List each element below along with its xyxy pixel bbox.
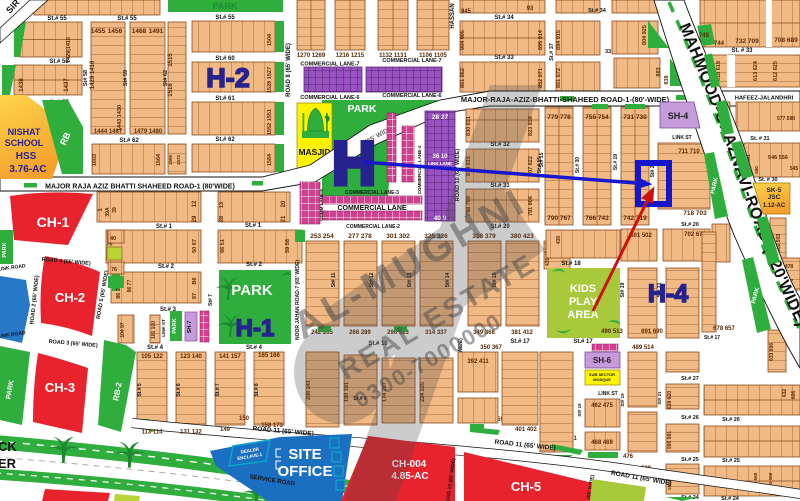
svg-text:33: 33 [605,49,611,55]
svg-text:462 475: 462 475 [591,403,613,409]
svg-text:1491: 1491 [149,28,164,35]
svg-text:COMMERCIAL LANE: COMMERCIAL LANE [337,205,406,212]
svg-text:St.# 7: St.# 7 [215,383,221,397]
svg-text:619 620: 619 620 [667,391,673,409]
svg-text:1456: 1456 [108,28,123,35]
svg-text:MOSQUE: MOSQUE [593,377,611,382]
svg-text:KIDS: KIDS [570,283,596,295]
svg-text:CK: CK [0,439,17,454]
svg-text:COMMERCIAL LANE-3: COMMERCIAL LANE-3 [345,190,399,196]
svg-text:St.# 34: St.# 34 [588,8,607,14]
svg-text:HAFEEZ-JALANDHRI: HAFEEZ-JALANDHRI [735,96,794,102]
svg-text:96 77: 96 77 [127,280,133,293]
svg-text:1479 1480: 1479 1480 [134,129,163,135]
svg-text:632: 632 [782,389,788,398]
svg-text:St.# 25: St.# 25 [681,457,699,463]
svg-text:839: 839 [664,75,670,84]
svg-text:St.# 62: St.# 62 [119,138,139,144]
svg-text:489 514: 489 514 [632,345,654,351]
svg-text:1437: 1437 [64,78,70,92]
svg-text:28: 28 [219,216,225,222]
svg-text:1595: 1595 [168,154,173,165]
svg-text:St# 21: St# 21 [657,391,662,405]
svg-text:861 872: 861 872 [556,68,562,88]
svg-text:28 27: 28 27 [432,114,449,121]
svg-text:St# 7: St# 7 [208,294,214,306]
svg-text:678 657: 678 657 [713,326,735,332]
svg-text:HSS: HSS [16,151,37,162]
svg-text:590 591: 590 591 [667,431,673,449]
svg-text:883: 883 [656,67,662,76]
svg-text:613 624: 613 624 [753,60,759,81]
svg-text:718 703: 718 703 [683,210,707,217]
svg-text:123 140: 123 140 [180,354,202,360]
svg-text:CH-3: CH-3 [45,380,75,395]
svg-text:St# 58: St# 58 [83,70,89,86]
svg-text:H-1: H-1 [236,315,275,342]
svg-text:113 114: 113 114 [141,430,163,436]
svg-text:CH-1: CH-1 [37,214,70,230]
svg-text:PARK: PARK [213,1,238,11]
svg-text:550: 550 [754,166,759,174]
svg-text:1270 1269: 1270 1269 [297,53,326,59]
svg-text:St.# 2: St.# 2 [158,264,175,270]
svg-text:SH-4: SH-4 [668,111,689,121]
svg-text:606: 606 [791,391,797,400]
svg-text:708 689: 708 689 [774,37,798,44]
svg-text:1443 1430: 1443 1430 [117,105,123,131]
svg-text:COMMERCIAL LANE-4: COMMERCIAL LANE-4 [417,145,422,194]
svg-text:St.# 34: St.# 34 [494,15,514,21]
svg-text:St.# 61: St.# 61 [215,96,235,102]
svg-text:St.# 30: St.# 30 [575,157,581,173]
svg-text:253 254: 253 254 [310,233,334,240]
svg-text:21: 21 [281,215,287,222]
svg-text:St.# 56: St.# 56 [49,59,69,65]
svg-text:St.# 19: St.# 19 [613,154,619,170]
svg-text:St.# 17: St.# 17 [510,339,530,345]
svg-text:545: 545 [790,166,799,172]
svg-text:830 831: 830 831 [466,116,472,136]
svg-text:St.# 55: St.# 55 [215,15,235,21]
svg-text:20: 20 [281,200,287,207]
svg-text:392 411: 392 411 [467,359,489,365]
svg-text:SCHOOL: SCHOOL [5,138,44,148]
svg-text:76: 76 [111,267,117,273]
svg-text:1468: 1468 [132,28,147,35]
svg-text:St.# 6: St.# 6 [176,383,182,397]
svg-text:St. # 31: St. # 31 [750,136,769,142]
svg-text:COMMERCIAL LANE-7: COMMERCIAL LANE-7 [382,58,441,64]
svg-text:381 412: 381 412 [511,330,533,336]
svg-text:742 719: 742 719 [623,215,647,222]
svg-text:165 166: 165 166 [258,353,280,359]
svg-text:476: 476 [623,454,634,460]
svg-text:13: 13 [219,202,225,208]
svg-text:St.# 15: St.# 15 [537,157,543,173]
svg-text:St.# 17: St.# 17 [573,339,593,345]
svg-text:66 51: 66 51 [220,239,226,253]
svg-text:105 122: 105 122 [141,354,163,360]
svg-text:1584: 1584 [267,153,273,166]
svg-text:St.# 4: St.# 4 [246,345,263,351]
svg-text:St.# 55: St.# 55 [117,16,137,22]
svg-text:3.76-AC: 3.76-AC [9,164,46,175]
svg-text:12: 12 [192,200,198,207]
svg-text:468 469: 468 469 [591,440,613,446]
svg-text:ER: ER [0,456,17,471]
svg-text:1438: 1438 [19,78,25,92]
svg-text:PARK: PARK [2,242,8,257]
svg-text:St.# 2: St.# 2 [246,262,263,268]
svg-text:546 556: 546 556 [768,155,788,161]
svg-text:59 58: 59 58 [285,239,291,253]
svg-text:HASSAN: HASSAN [450,3,456,28]
svg-text:1504: 1504 [267,33,273,46]
svg-text:St# 59: St# 59 [123,70,129,86]
svg-text:St.# 55: St.# 55 [47,16,67,22]
svg-text:St.# 17: St.# 17 [704,335,720,341]
svg-text:St# 62: St# 62 [163,70,169,86]
svg-text:501 502: 501 502 [630,233,652,239]
svg-text:1528 1527: 1528 1527 [267,67,273,93]
svg-text:691 690: 691 690 [641,329,663,335]
svg-text:1515: 1515 [168,53,174,67]
svg-text:LINK ST: LINK ST [161,319,166,337]
svg-text:COMM LANE-5: COMM LANE-5 [319,189,324,221]
svg-text:JSC: JSC [768,194,781,201]
svg-text:633 656: 633 656 [769,343,775,361]
svg-text:ROAD 8 (65' WIDE): ROAD 8 (65' WIDE) [286,43,292,97]
svg-text:B6: B6 [192,277,198,284]
svg-text:SH-6: SH-6 [593,356,612,365]
svg-text:612 625: 612 625 [773,61,779,81]
svg-text:852 871: 852 871 [538,68,544,88]
svg-text:St.# 24: St.# 24 [721,496,740,501]
svg-text:St.# 1: St.# 1 [245,223,262,229]
svg-text:158 173: 158 173 [261,423,283,429]
svg-text:PARK: PARK [231,282,273,299]
svg-text:OFFICE: OFFICE [278,463,333,480]
svg-text:39A: 39A [105,207,111,217]
svg-text:St.# 18: St.# 18 [561,261,581,267]
svg-text:SH-7: SH-7 [187,321,193,334]
svg-text:755 754: 755 754 [585,114,609,121]
svg-text:401 402: 401 402 [515,427,537,433]
svg-text:St.# 60: St.# 60 [215,56,235,62]
svg-text:577 590: 577 590 [777,116,795,122]
svg-text:895 914: 895 914 [538,29,544,50]
svg-text:40: 40 [110,236,116,242]
svg-text:1564: 1564 [156,153,162,166]
svg-text:PARK: PARK [172,318,178,333]
svg-text:MAJOR RAJA AZIZ BHATTI SHAHEED: MAJOR RAJA AZIZ BHATTI SHAHEED ROAD-1 (8… [45,184,235,191]
svg-text:CH-5: CH-5 [511,479,541,494]
svg-text:LINK ST: LINK ST [598,391,617,397]
svg-text:150: 150 [239,416,250,422]
svg-text:904 905: 904 905 [460,30,466,50]
svg-text:LINK ST: LINK ST [672,135,691,141]
svg-text:St.# 33: St.# 33 [494,55,514,61]
svg-text:1216 1215: 1216 1215 [336,53,365,59]
svg-text:745: 745 [699,33,710,39]
svg-text:1.12-AC: 1.12-AC [763,203,786,209]
svg-text:LINK LANE: LINK LANE [428,161,452,166]
svg-text:St.# 20: St.# 20 [681,222,699,228]
svg-text:St.# 27: St.# 27 [681,376,699,382]
svg-text:104 97: 104 97 [120,322,126,338]
svg-text:101 100: 101 100 [151,321,157,339]
svg-text:744: 744 [714,41,725,47]
svg-text:St.# 26: St.# 26 [681,415,699,421]
svg-text:St. # 33: St. # 33 [731,48,753,54]
svg-text:141 157: 141 157 [219,354,241,360]
svg-text:732 709: 732 709 [735,38,759,45]
svg-text:1429 1416: 1429 1416 [90,60,96,89]
svg-text:277 278: 277 278 [348,233,372,240]
svg-text:PARK: PARK [348,103,377,115]
svg-text:St.# 8: St.# 8 [254,383,260,397]
svg-text:1444 1467: 1444 1467 [94,129,123,135]
svg-text:1603: 1603 [92,154,98,166]
svg-text:PLAY: PLAY [569,296,598,308]
svg-text:87: 87 [192,293,198,299]
svg-text:29: 29 [192,215,198,222]
svg-text:St# 19: St# 19 [620,393,625,407]
svg-text:St.# 26: St.# 26 [722,417,740,423]
svg-text:H-2: H-2 [206,63,250,93]
svg-text:St# 16: St# 16 [577,403,582,417]
svg-text:149: 149 [220,427,231,433]
svg-text:131 132: 131 132 [180,430,202,436]
svg-text:731 730: 731 730 [623,114,647,121]
svg-text:39: 39 [112,207,118,213]
svg-text:St.# 37: St.# 37 [549,43,555,61]
svg-text:COMMERCIAL LANE-6: COMMERCIAL LANE-6 [382,93,441,99]
svg-text:SK-5: SK-5 [767,187,782,194]
svg-text:894 915: 894 915 [556,30,562,50]
svg-text:766 743: 766 743 [585,215,609,222]
svg-text:804 925: 804 925 [642,25,648,45]
svg-text:COMMERCIAL LANE-7: COMMERCIAL LANE-7 [300,62,359,68]
svg-text:St# 19: St# 19 [620,282,626,297]
svg-text:490 513: 490 513 [601,329,623,335]
svg-text:1552 1551: 1552 1551 [267,109,273,135]
svg-text:St.# 4: St.# 4 [147,345,164,351]
svg-text:93: 93 [527,6,534,12]
svg-text:779 778: 779 778 [547,114,571,121]
svg-text:301 302: 301 302 [386,233,410,240]
svg-text:St.# 5: St.# 5 [137,383,143,397]
svg-text:711 710: 711 710 [678,149,700,155]
svg-text:CH-2: CH-2 [55,290,85,305]
svg-text:1455: 1455 [91,28,106,35]
svg-text:1572: 1572 [176,154,181,165]
svg-text:St.# 25: St.# 25 [722,458,740,464]
svg-text:COMMERCIAL LANE-2: COMMERCIAL LANE-2 [346,224,400,230]
svg-text:945: 945 [461,9,472,15]
svg-text:807 822: 807 822 [528,156,534,176]
svg-text:861 862: 861 862 [460,68,466,88]
svg-text:430: 430 [556,236,562,245]
svg-text:St.# 62: St.# 62 [215,137,235,143]
svg-text:St.# 1: St.# 1 [156,224,173,230]
svg-text:50 67: 50 67 [192,239,198,253]
svg-text:H-4: H-4 [648,280,688,308]
svg-text:350 367: 350 367 [480,345,502,351]
svg-text:790 767: 790 767 [547,215,571,222]
svg-text:St. # 30: St. # 30 [758,177,777,183]
svg-text:36 10: 36 10 [432,154,448,160]
svg-text:NISHAT: NISHAT [8,127,41,137]
svg-text:SITE: SITE [288,446,321,463]
